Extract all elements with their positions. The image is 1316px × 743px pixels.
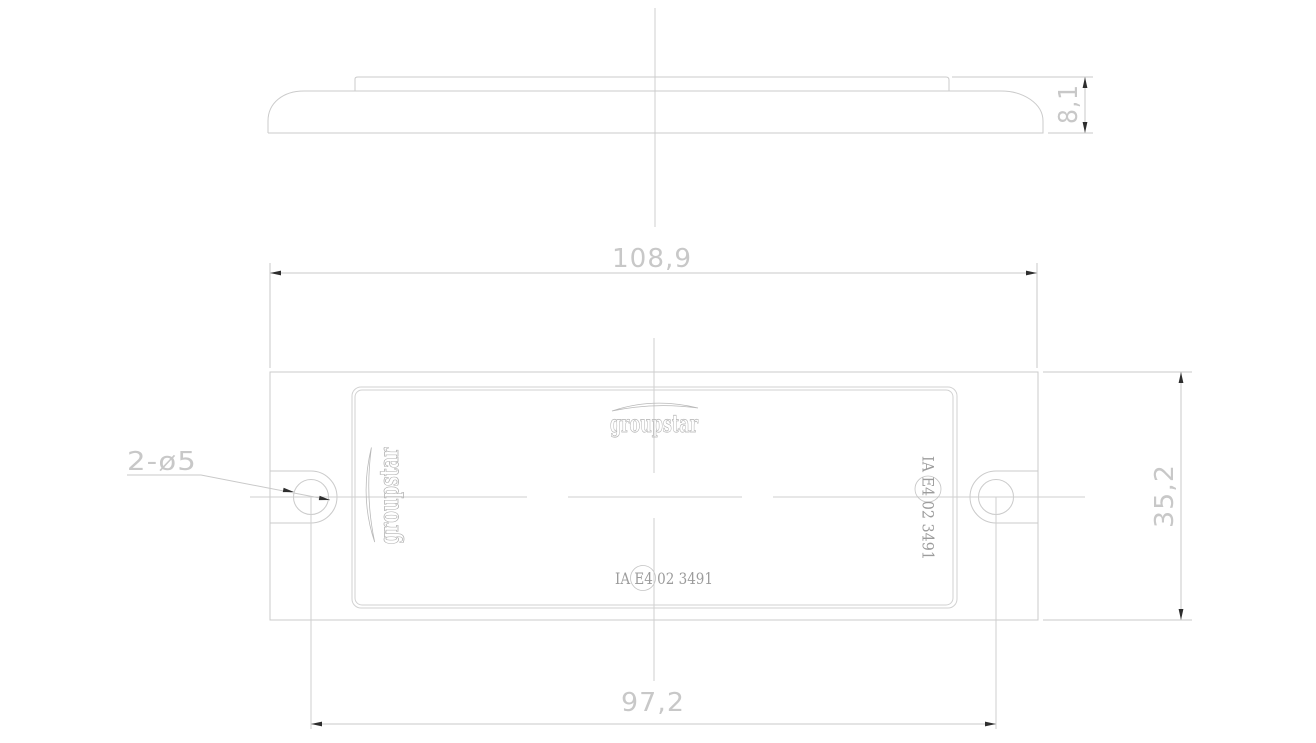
dim-arrow xyxy=(1026,271,1037,276)
dim-arrow xyxy=(283,488,294,492)
dim-arrow xyxy=(1179,609,1184,620)
front-view: groupstar IA E4 02 3491 IA E4 02 3491 xyxy=(250,338,1085,729)
holes-callout: 2-ø5 xyxy=(127,447,330,500)
dim-spacing-value: 97,2 xyxy=(621,688,685,718)
side-view-step xyxy=(355,77,949,91)
holes-callout-value: 2-ø5 xyxy=(127,447,197,477)
dim-hole-spacing: 97,2 xyxy=(311,688,996,726)
approval-marking-bottom: IA E4 02 3491 xyxy=(615,566,713,591)
dim-overall-height: 35,2 xyxy=(1043,372,1192,620)
approval-marking-right: IA E4 02 3491 xyxy=(915,456,941,560)
approval-text: IA E4 02 3491 xyxy=(919,456,937,560)
side-profile-view: 8,1 xyxy=(268,8,1093,227)
technical-drawing: 8,1 108,9 xyxy=(0,0,1316,743)
dim-width-value: 108,9 xyxy=(612,244,692,274)
dim-arrow xyxy=(1179,372,1184,383)
dim-arrow xyxy=(311,722,322,727)
brand-logo-left xyxy=(366,447,405,545)
cad-drawing-canvas: 8,1 108,9 xyxy=(0,0,1316,743)
dim-arrow xyxy=(985,722,996,727)
approval-text: IA E4 02 3491 xyxy=(615,570,713,588)
dim-thickness-value: 8,1 xyxy=(1054,84,1084,124)
dim-arrow xyxy=(270,271,281,276)
brand-logo-top xyxy=(610,403,698,438)
dim-thickness: 8,1 xyxy=(952,77,1093,133)
holes-callout-leader xyxy=(127,475,330,500)
dim-height-value: 35,2 xyxy=(1150,464,1180,528)
